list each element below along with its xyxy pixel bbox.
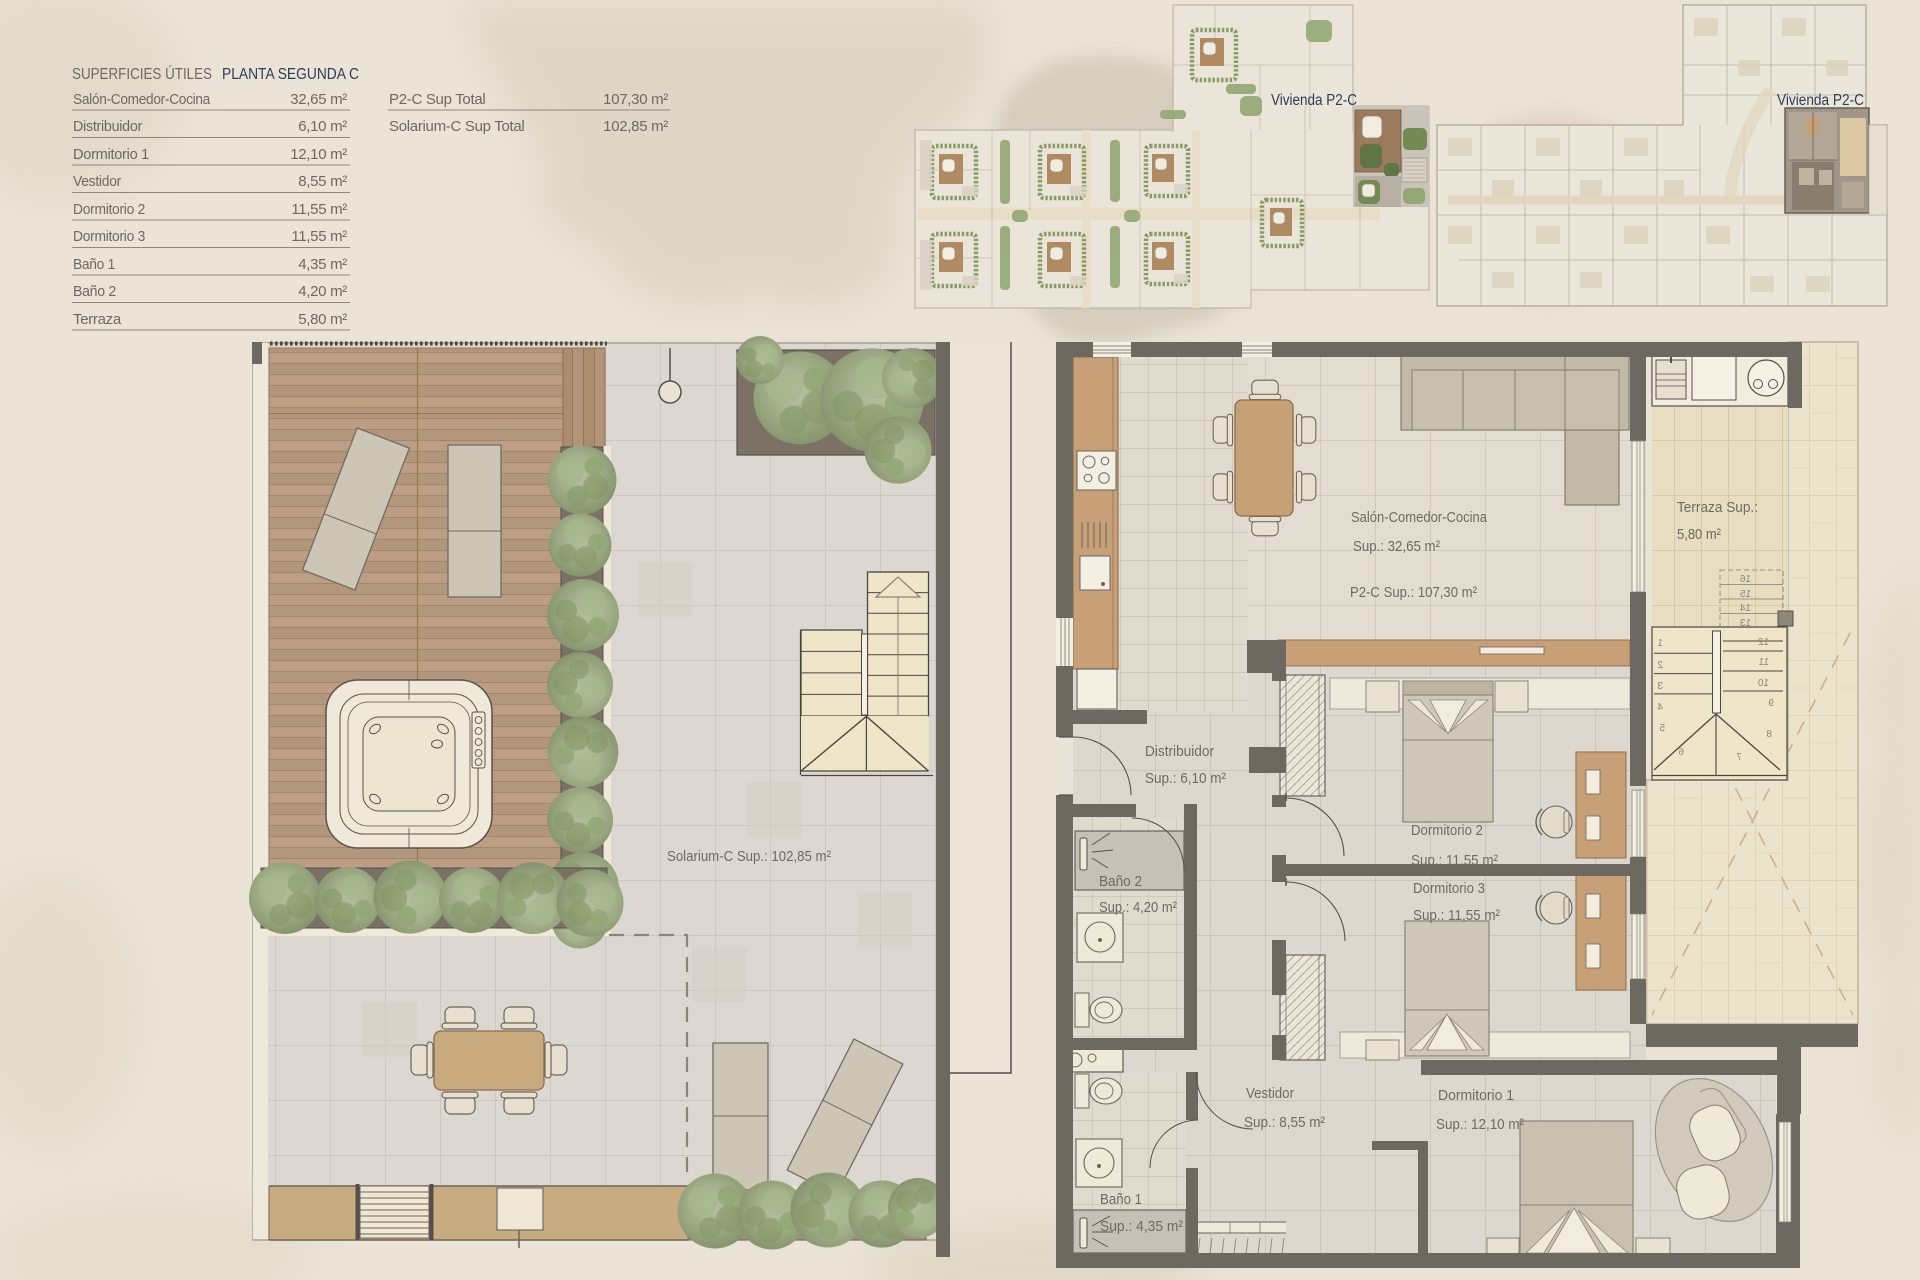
svg-text:Baño 2: Baño 2 [73, 283, 116, 300]
svg-text:1: 1 [1657, 638, 1663, 649]
svg-text:32,65 m²: 32,65 m² [290, 91, 347, 108]
svg-text:16: 16 [1739, 574, 1751, 585]
svg-text:9: 9 [1768, 698, 1774, 709]
svg-text:SUPERFICIES ÚTILES: SUPERFICIES ÚTILES [72, 64, 212, 83]
svg-text:Dormitorio 1: Dormitorio 1 [73, 146, 149, 163]
svg-text:8: 8 [1766, 729, 1772, 740]
svg-text:12: 12 [1757, 637, 1769, 648]
svg-text:Sup.: 32,65 m²: Sup.: 32,65 m² [1353, 538, 1440, 555]
svg-text:Vivienda P2-C: Vivienda P2-C [1777, 92, 1864, 109]
svg-text:Terraza Sup.:: Terraza Sup.: [1677, 499, 1758, 516]
svg-text:7: 7 [1736, 752, 1742, 763]
svg-text:Sup.: 6,10 m²: Sup.: 6,10 m² [1145, 770, 1226, 787]
svg-text:Vivienda P2-C: Vivienda P2-C [1271, 92, 1357, 109]
svg-text:5,80 m²: 5,80 m² [1677, 526, 1721, 543]
svg-text:15: 15 [1739, 589, 1751, 600]
svg-text:6: 6 [1678, 747, 1684, 758]
svg-text:Baño 2: Baño 2 [1099, 873, 1142, 890]
svg-text:12,10 m²: 12,10 m² [290, 146, 347, 163]
svg-text:4,35 m²: 4,35 m² [298, 256, 347, 273]
svg-text:Solarium-C Sup.: 102,85 m²: Solarium-C Sup.: 102,85 m² [667, 848, 831, 865]
svg-text:Baño 1: Baño 1 [73, 256, 115, 273]
svg-text:P2-C Sup.: 107,30 m²: P2-C Sup.: 107,30 m² [1350, 584, 1477, 601]
svg-text:P2-C Sup Total: P2-C Sup Total [389, 91, 485, 108]
svg-text:Dormitorio 2: Dormitorio 2 [73, 201, 145, 218]
svg-text:Dormitorio 3: Dormitorio 3 [73, 228, 145, 245]
svg-text:4,20 m²: 4,20 m² [298, 283, 347, 300]
svg-text:Vestidor: Vestidor [1246, 1085, 1294, 1102]
svg-text:Dormitorio 2: Dormitorio 2 [1411, 822, 1483, 839]
svg-text:Baño 1: Baño 1 [1100, 1191, 1142, 1208]
svg-text:3: 3 [1657, 681, 1663, 692]
svg-text:Sup.: 12,10 m²: Sup.: 12,10 m² [1436, 1116, 1524, 1133]
svg-text:Sup.: 4,35 m²: Sup.: 4,35 m² [1100, 1218, 1183, 1235]
svg-text:8,55 m²: 8,55 m² [298, 173, 347, 190]
svg-text:Dormitorio 3: Dormitorio 3 [1413, 880, 1485, 897]
svg-text:102,85 m²: 102,85 m² [603, 118, 668, 135]
svg-text:Sup.: 11,55 m²: Sup.: 11,55 m² [1413, 907, 1500, 924]
svg-text:4: 4 [1657, 702, 1663, 713]
svg-text:14: 14 [1739, 603, 1751, 614]
svg-text:Salón-Comedor-Cocina: Salón-Comedor-Cocina [1351, 509, 1488, 526]
svg-text:6,10 m²: 6,10 m² [298, 118, 347, 135]
svg-text:11: 11 [1758, 657, 1769, 668]
svg-text:2: 2 [1657, 660, 1663, 671]
svg-text:Terraza: Terraza [73, 311, 122, 328]
svg-text:107,30 m²: 107,30 m² [603, 91, 668, 108]
svg-text:Sup.: 11,55 m²: Sup.: 11,55 m² [1411, 852, 1498, 869]
svg-text:Dormitorio 1: Dormitorio 1 [1438, 1087, 1514, 1104]
svg-text:Sup.: 8,55 m²: Sup.: 8,55 m² [1244, 1114, 1325, 1131]
svg-text:5: 5 [1659, 723, 1665, 734]
svg-text:10: 10 [1757, 678, 1769, 689]
svg-text:Solarium-C Sup Total: Solarium-C Sup Total [389, 118, 524, 135]
svg-text:Sup.: 4,20 m²: Sup.: 4,20 m² [1099, 899, 1177, 916]
svg-text:PLANTA SEGUNDA C: PLANTA SEGUNDA C [222, 66, 359, 83]
svg-text:Salón-Comedor-Cocina: Salón-Comedor-Cocina [73, 91, 211, 108]
svg-text:11,55 m²: 11,55 m² [291, 201, 347, 218]
svg-text:5,80 m²: 5,80 m² [298, 311, 347, 328]
svg-text:Distribuidor: Distribuidor [1145, 743, 1214, 760]
svg-text:Distribuidor: Distribuidor [73, 118, 142, 135]
svg-text:11,55 m²: 11,55 m² [291, 228, 347, 245]
svg-text:Vestidor: Vestidor [73, 173, 121, 190]
